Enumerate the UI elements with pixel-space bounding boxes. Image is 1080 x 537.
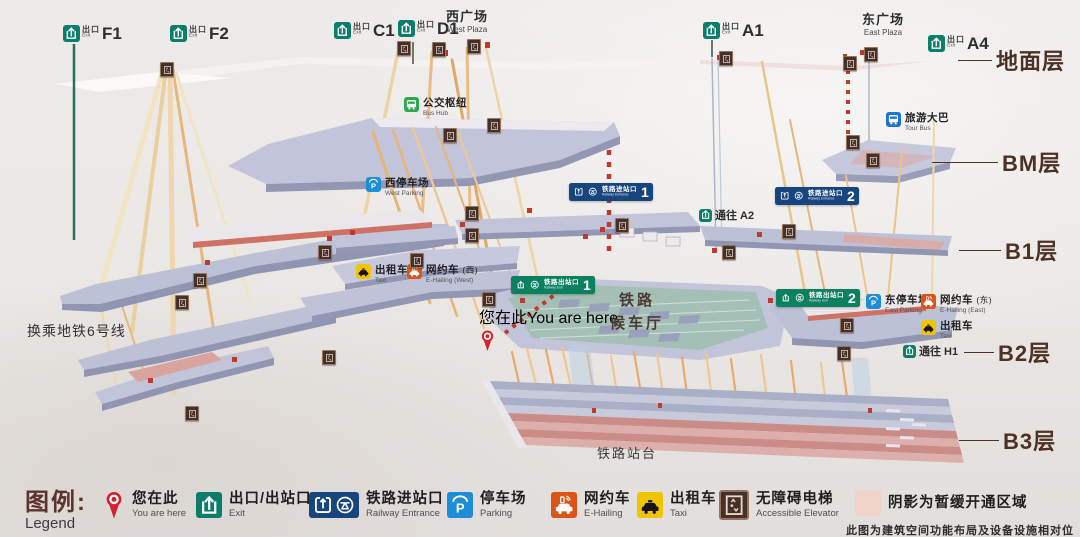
accessible-elevator-icon [193, 273, 207, 288]
exit-sign-A1: 出口ExitA1 [703, 22, 764, 39]
exit-icon [699, 209, 712, 222]
ehailing-icon [551, 492, 577, 518]
accessible-elevator-icon [482, 292, 496, 307]
legend-title-cn: 图例: [25, 482, 87, 517]
legend: 图例: Legend 您在此You are here出口/出站口Exit铁路进站… [0, 476, 1080, 537]
taxi-icon [921, 320, 936, 335]
plaza-label: 东广场East Plaza [862, 13, 904, 37]
route-sign-H1: 通往 H1 [903, 343, 958, 359]
accessible-elevator-icon [843, 56, 857, 71]
accessible-elevator-icon [722, 245, 736, 260]
accessible-elevator-icon [864, 47, 878, 62]
bus-icon [404, 97, 419, 112]
railway-logo-icon [793, 191, 804, 202]
legend-item-parking: P停车场Parking [447, 490, 527, 520]
accessible-elevator-icon [719, 51, 733, 66]
legend-item-shade: 阴影为暂缓开通区域 [855, 490, 1028, 516]
exit-icon [398, 20, 415, 37]
station-wayfinding-map: 出口ExitF1出口ExitF2出口ExitC1出口ExitD1出口ExitA1… [0, 0, 1080, 537]
legend-item-exit: 出口/出站口Exit [196, 490, 312, 520]
tourbus-icon [886, 112, 901, 127]
accessible-elevator-icon [719, 490, 749, 520]
accessible-elevator-icon [175, 295, 189, 310]
facility-parking: P东停车场East Parking [866, 294, 929, 314]
railway-exit-sign-2: 铁路出站口Railway Exit2 [776, 289, 860, 307]
ehailing-icon [921, 294, 936, 309]
exit-sign-F2: 出口ExitF2 [170, 25, 229, 42]
svg-text:P: P [456, 500, 465, 515]
railway-exit-sign-1: 铁路出站口Railway Exit1 [511, 276, 595, 294]
area-label-hall: 铁路 候车厅 [610, 290, 664, 335]
accessible-elevator-icon [322, 350, 336, 365]
parking-icon: P [866, 294, 881, 309]
accessible-elevator-icon [160, 62, 174, 77]
taxi-icon [637, 492, 663, 518]
legend-item-elevator: 无障碍电梯Accessible Elevator [719, 490, 839, 520]
exit-box-icon [780, 293, 791, 304]
accessible-elevator-icon [846, 135, 860, 150]
floor-label-地面层: 地面层 [958, 44, 1065, 76]
exit-icon [703, 22, 720, 39]
parking-icon: P [447, 492, 473, 518]
accessible-elevator-icon [837, 346, 851, 361]
you-are-here-marker: 您在此You are here [479, 304, 618, 357]
into-box-icon [779, 191, 790, 202]
exit-box-icon [515, 280, 526, 291]
legend-title: 图例: Legend [25, 482, 87, 532]
accessible-elevator-icon [318, 245, 332, 260]
legend-item-ehailing: 网约车E-Hailing [551, 490, 631, 520]
railway-entrance-sign-1: 铁路进站口Railway Entrance1 [569, 183, 653, 201]
facility-taxi: 出租车Taxi [356, 264, 408, 284]
facility-ehailing: 网约车 (东)E-Hailing (East) [921, 294, 992, 314]
legend-title-en: Legend [25, 515, 87, 532]
into-box-icon [573, 187, 584, 198]
exit-icon [196, 492, 222, 518]
legend-item-pin: 您在此You are here [103, 490, 186, 520]
exit-icon [903, 345, 916, 358]
route-sign-A2: 通往 A2 [699, 207, 754, 223]
accessible-elevator-icon [487, 118, 501, 133]
accessible-elevator-icon [840, 318, 854, 333]
accessible-elevator-icon [615, 218, 629, 233]
map-markers-layer: 出口ExitF1出口ExitF2出口ExitC1出口ExitD1出口ExitA1… [0, 0, 1080, 537]
shaded-area-swatch [855, 490, 881, 516]
legend-item-taxi: 出租车Taxi [637, 490, 717, 520]
accessible-elevator-icon [397, 41, 411, 56]
exit-icon [170, 25, 187, 42]
railway-entrance-sign-2: 铁路进站口Railway Entrance2 [775, 187, 859, 205]
accessible-elevator-icon [443, 128, 457, 143]
exit-icon [334, 22, 351, 39]
svg-text:P: P [871, 299, 876, 308]
accessible-elevator-icon [465, 228, 479, 243]
floor-label-B3层: B3层 [959, 424, 1056, 456]
plaza-label: 西广场West Plaza [446, 10, 488, 34]
railway-logo-icon [529, 280, 540, 291]
accessible-elevator-icon [467, 39, 481, 54]
exit-icon [928, 35, 945, 52]
railway-logo-icon [587, 187, 598, 198]
facility-taxi: 出租车Taxi [921, 320, 973, 340]
exit-icon [63, 25, 80, 42]
accessible-elevator-icon [185, 406, 199, 421]
floor-label-B2层: B2层 [964, 336, 1051, 368]
facility-bus: 公交枢纽Bus Hub [404, 97, 467, 117]
floor-label-B1层: B1层 [959, 234, 1058, 266]
accessible-elevator-icon [465, 206, 479, 221]
taxi-icon [356, 264, 371, 279]
accessible-elevator-icon [782, 224, 796, 239]
area-label-platform: 铁路站台 [597, 443, 657, 462]
railway-logo-icon [794, 293, 805, 304]
legend-item-entrance: 铁路进站口Railway Entrance [309, 490, 444, 520]
area-label-transfer: 换乘地铁6号线 [27, 321, 126, 341]
exit-sign-C1: 出口ExitC1 [334, 22, 395, 39]
floor-label-BM层: BM层 [932, 146, 1061, 178]
map-disclaimer-note: 此图为建筑空间功能布局及设备设施相对位置示意 [846, 522, 1080, 537]
railway-entrance-icon [309, 492, 359, 518]
facility-tourbus: 旅游大巴Tour Bus [886, 112, 949, 132]
exit-sign-F1: 出口ExitF1 [63, 25, 122, 42]
parking-icon: P [366, 177, 381, 192]
accessible-elevator-icon [432, 42, 446, 57]
accessible-elevator-icon [410, 253, 424, 268]
facility-parking: P西停车场West Parking [366, 177, 429, 197]
accessible-elevator-icon [866, 153, 880, 168]
svg-text:P: P [371, 182, 376, 191]
